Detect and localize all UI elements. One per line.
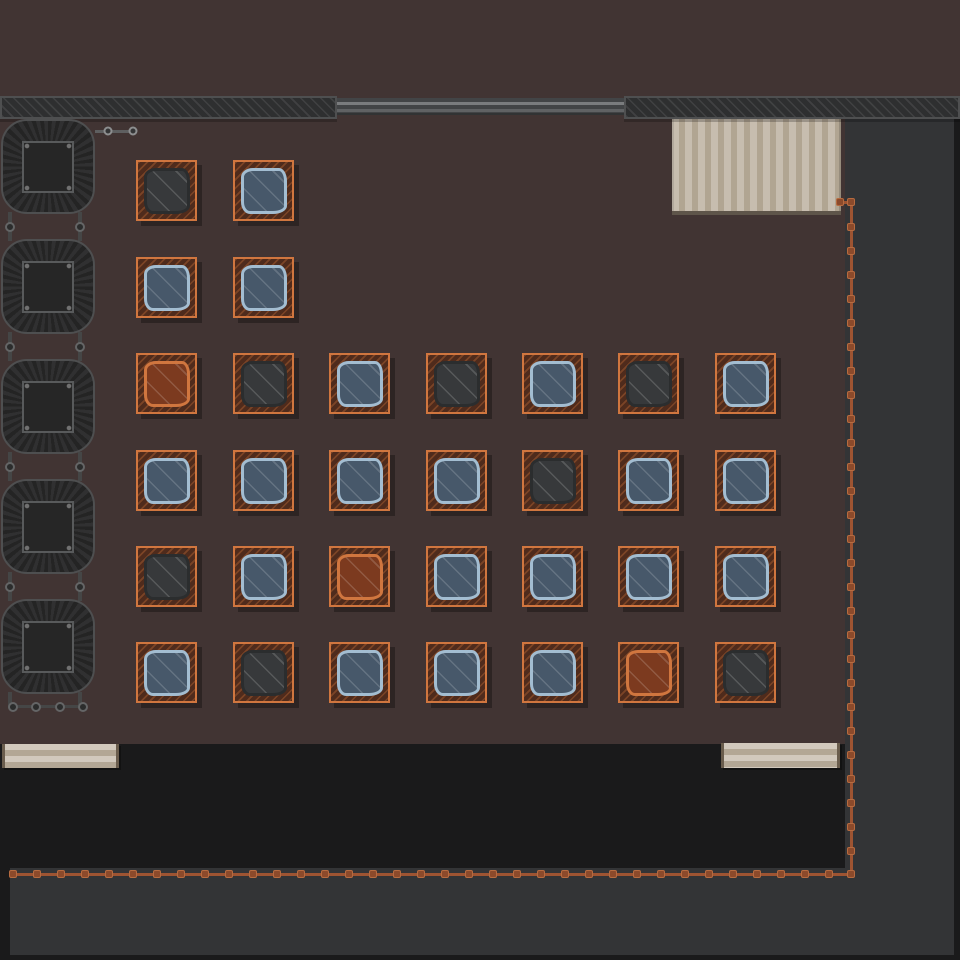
- cable-junction-node: [847, 679, 855, 687]
- cable-junction-node: [847, 511, 855, 519]
- cable-junction-node: [657, 870, 665, 878]
- cable-junction-node: [225, 870, 233, 878]
- cable-junction-node: [847, 391, 855, 399]
- power-cable-layer: [0, 0, 960, 960]
- cable-junction-node: [753, 870, 761, 878]
- cable-junction-node: [847, 463, 855, 471]
- cable-junction-node: [321, 870, 329, 878]
- cable-junction-node: [681, 870, 689, 878]
- cable-junction-node: [847, 703, 855, 711]
- cable-junction-node: [201, 870, 209, 878]
- cable-junction-node: [777, 870, 785, 878]
- cable-junction-node: [847, 799, 855, 807]
- cable-junction-node: [129, 870, 137, 878]
- cable-junction-node: [847, 823, 855, 831]
- cable-junction-node: [847, 247, 855, 255]
- cable-junction-node: [57, 870, 65, 878]
- cable-junction-node: [705, 870, 713, 878]
- cable-junction-node: [561, 870, 569, 878]
- cable-junction-node: [345, 870, 353, 878]
- cable-junction-node: [33, 870, 41, 878]
- cable-junction-node: [393, 870, 401, 878]
- cable-junction-node: [847, 415, 855, 423]
- cable-junction-node: [847, 655, 855, 663]
- cable-junction-node: [417, 870, 425, 878]
- cable-junction-node: [847, 631, 855, 639]
- cable-junction-node: [847, 487, 855, 495]
- cable-junction-node: [609, 870, 617, 878]
- cable-junction-node: [847, 367, 855, 375]
- cable-junction-node: [847, 583, 855, 591]
- game-viewport: [0, 0, 960, 960]
- cable-junction-node: [489, 870, 497, 878]
- cable-junction-node: [847, 223, 855, 231]
- cable-junction-node: [273, 870, 281, 878]
- cable-junction-node: [825, 870, 833, 878]
- cable-junction-node: [537, 870, 545, 878]
- cable-junction-node: [441, 870, 449, 878]
- cable-junction-node: [81, 870, 89, 878]
- cable-junction-node: [847, 319, 855, 327]
- cable-junction-node: [847, 559, 855, 567]
- cable-junction-node: [847, 775, 855, 783]
- cable-junction-node: [513, 870, 521, 878]
- cable-junction-node: [847, 870, 855, 878]
- cable-junction-node: [836, 198, 844, 206]
- cable-junction-node: [585, 870, 593, 878]
- cable-junction-node: [847, 751, 855, 759]
- cable-junction-node: [847, 847, 855, 855]
- cable-junction-node: [465, 870, 473, 878]
- cable-junction-node: [847, 295, 855, 303]
- cable-junction-node: [729, 870, 737, 878]
- cable-junction-node: [847, 607, 855, 615]
- cable-junction-node: [847, 198, 855, 206]
- cable-junction-node: [297, 870, 305, 878]
- cable-junction-node: [9, 870, 17, 878]
- cable-junction-node: [847, 439, 855, 447]
- cable-junction-node: [847, 727, 855, 735]
- cable-junction-node: [105, 870, 113, 878]
- cable-junction-node: [847, 535, 855, 543]
- cable-junction-node: [153, 870, 161, 878]
- cable-junction-node: [847, 343, 855, 351]
- cable-junction-node: [847, 271, 855, 279]
- cable-junction-node: [633, 870, 641, 878]
- cable-junction-node: [801, 870, 809, 878]
- cable-junction-node: [369, 870, 377, 878]
- cable-junction-node: [177, 870, 185, 878]
- cable-junction-node: [249, 870, 257, 878]
